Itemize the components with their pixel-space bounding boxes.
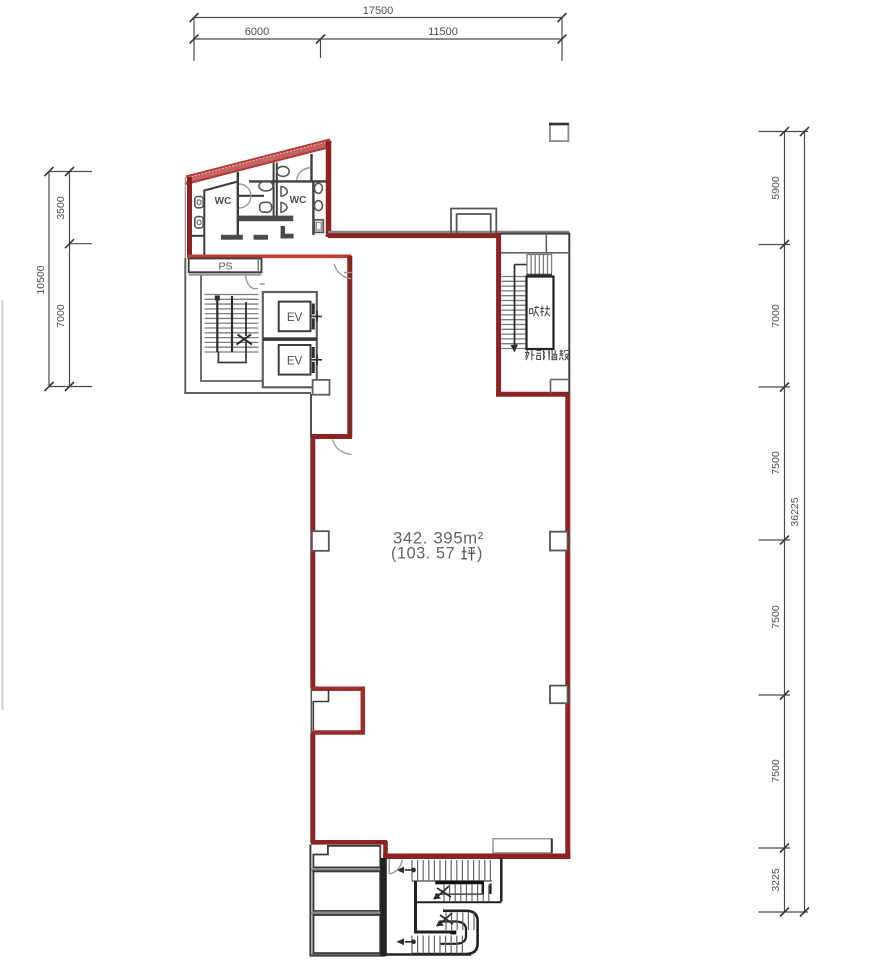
svg-text:PS: PS [218, 261, 232, 273]
svg-text:6000: 6000 [245, 26, 269, 38]
svg-text:7500: 7500 [770, 759, 782, 783]
svg-text:WC: WC [215, 196, 232, 207]
svg-text:7000: 7000 [55, 304, 67, 328]
svg-text:EV: EV [287, 312, 303, 324]
svg-text:7500: 7500 [770, 605, 782, 629]
svg-text:36225: 36225 [789, 497, 801, 526]
svg-text:5900: 5900 [770, 176, 782, 200]
svg-text:11500: 11500 [428, 26, 458, 38]
svg-text:3225: 3225 [770, 868, 782, 892]
svg-text:17500: 17500 [363, 5, 394, 17]
svg-text:7500: 7500 [770, 451, 782, 475]
svg-text:EV: EV [287, 355, 303, 367]
svg-text:10500: 10500 [35, 265, 47, 294]
svg-text:3500: 3500 [55, 196, 67, 220]
svg-text:(103. 57: (103. 57 [391, 545, 455, 563]
svg-text:WC: WC [290, 195, 307, 206]
svg-text:7000: 7000 [770, 304, 782, 328]
svg-text:): ) [477, 545, 482, 563]
